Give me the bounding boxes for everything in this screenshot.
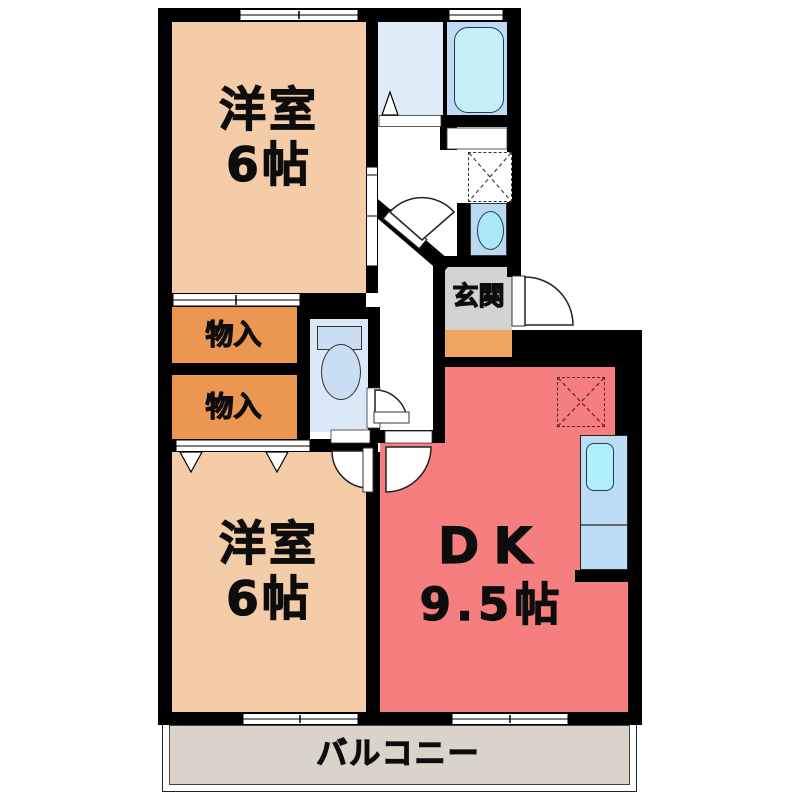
- wall-closet-divider: [170, 363, 297, 375]
- washing-machine-space: [468, 152, 512, 202]
- refrigerator-space: [557, 377, 605, 427]
- wall-hall-dk: [378, 430, 433, 443]
- bedroom-top-label: 洋室 6帖: [172, 86, 366, 191]
- toilet-bowl: [321, 344, 361, 400]
- bedroom-bottom-size: 6帖: [172, 575, 366, 624]
- bedroom-top-name: 洋室: [172, 86, 366, 135]
- genkan-step: [445, 330, 512, 357]
- hall-door-swing: [390, 198, 454, 240]
- wall-bedroombottom-top: [170, 439, 378, 452]
- entrance-door: [512, 276, 573, 326]
- bedroom-top-size: 6帖: [172, 141, 366, 190]
- wall-toilet-top: [297, 307, 380, 319]
- dk-name: DK: [392, 520, 592, 573]
- wall-bedroombottom-dk: [366, 452, 380, 712]
- washbasin-bowl: [477, 211, 504, 250]
- bedroom-bottom-label: 洋室 6帖: [172, 520, 366, 625]
- wall-genkan-top: [443, 256, 513, 267]
- wall-below-step: [445, 357, 512, 367]
- wall-diagonal: [371, 203, 447, 268]
- wall-dk-right-thick: [615, 367, 642, 435]
- wall-dk-top-outer: [512, 330, 642, 367]
- wall-outer-top: [158, 8, 521, 22]
- closet-lower-label: 物入: [170, 392, 297, 421]
- washroom-threshold: [379, 116, 441, 127]
- wall-toilet-right: [368, 319, 380, 439]
- wall-closet-right: [297, 307, 310, 439]
- wall-bedroomtop-closet: [170, 293, 366, 307]
- wall-genkan-left: [433, 262, 445, 443]
- dk-label: DK 9.5帖: [392, 520, 592, 628]
- balcony-label: バルコニー: [169, 738, 628, 771]
- wall-bedroomtop-hall: [366, 22, 378, 293]
- wall-washbasin-left: [457, 203, 470, 258]
- dk-size: 9.5帖: [392, 581, 592, 628]
- closet-upper-label: 物入: [170, 320, 297, 349]
- wall-washroom-bath-divider: [443, 22, 447, 115]
- wall-outer-bottom: [158, 712, 642, 725]
- wall-washroom-corner: [440, 115, 457, 150]
- hall-door-leaf: [383, 209, 427, 248]
- floorplan: 洋室 6帖 物入 物入 玄関 洋室 6帖 DK 9.5帖 バルコニー: [0, 0, 800, 800]
- kitchen-sink: [586, 443, 614, 491]
- washroom-floor: [378, 22, 443, 115]
- bathtub: [454, 27, 504, 113]
- bedroom-bottom-name: 洋室: [172, 520, 366, 569]
- wall-outer-right-upper: [507, 8, 521, 277]
- genkan-label: 玄関: [445, 284, 512, 311]
